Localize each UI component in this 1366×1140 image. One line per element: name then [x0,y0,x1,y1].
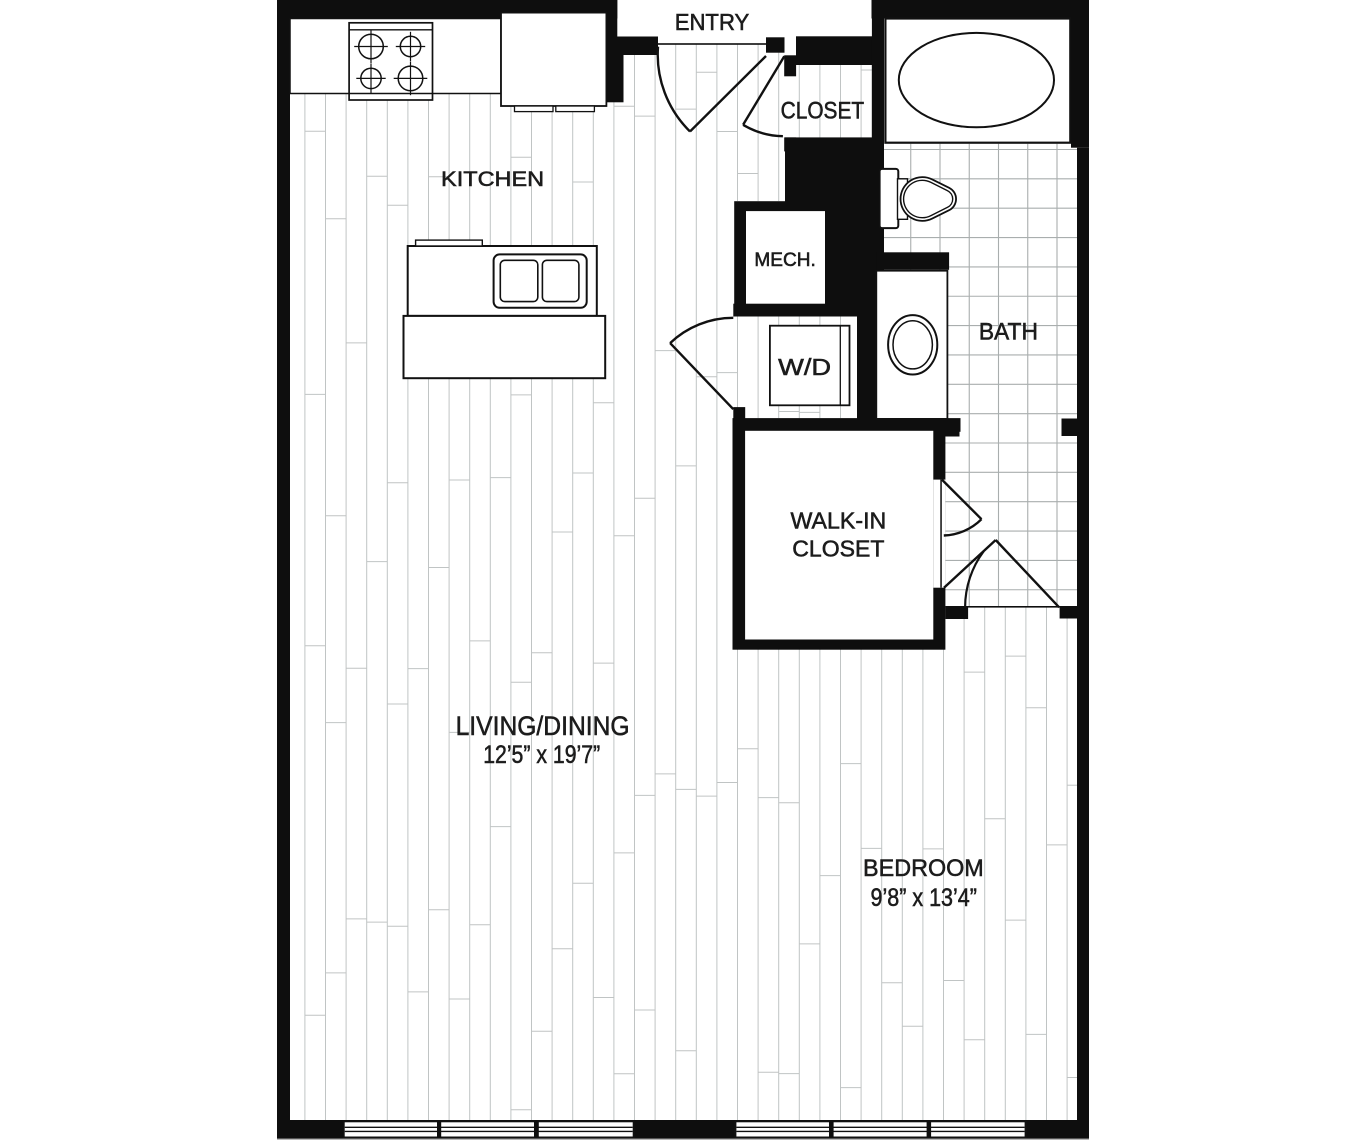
svg-text:BATH: BATH [979,318,1038,345]
svg-text:BEDROOM: BEDROOM [863,855,984,882]
svg-text:W/D: W/D [778,354,831,380]
svg-text:9’8” x 13’4”: 9’8” x 13’4” [871,884,977,912]
svg-text:WALK-IN: WALK-IN [791,507,887,533]
svg-text:KITCHEN: KITCHEN [441,167,544,191]
svg-text:CLOSET: CLOSET [781,97,865,124]
svg-text:12’5” x 19’7”: 12’5” x 19’7” [483,741,600,769]
svg-text:ENTRY: ENTRY [675,9,750,35]
svg-text:CLOSET: CLOSET [792,536,884,562]
svg-text:LIVING/DINING: LIVING/DINING [456,711,630,741]
svg-text:MECH.: MECH. [754,250,815,271]
